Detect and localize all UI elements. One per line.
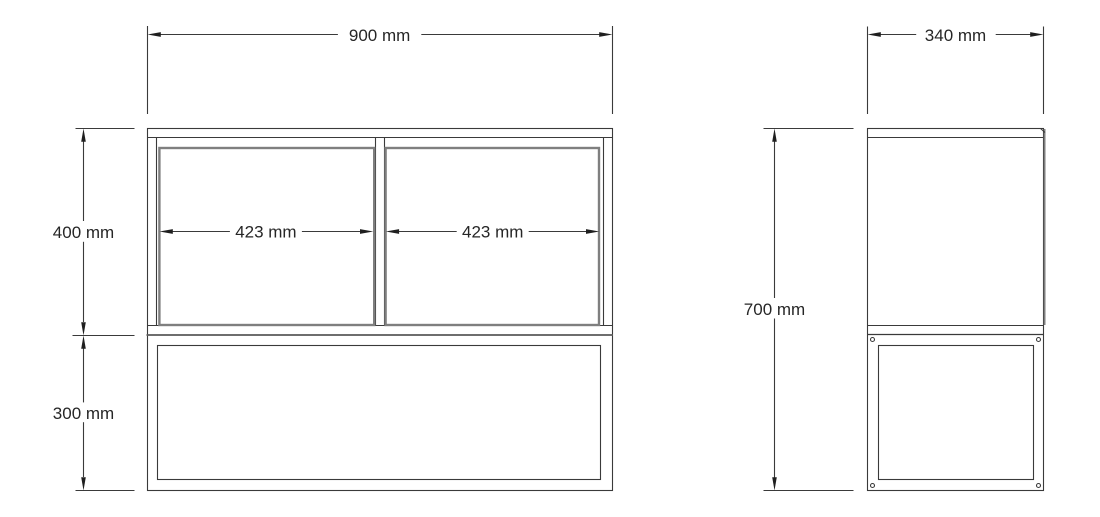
svg-text:423 mm: 423 mm bbox=[462, 223, 523, 242]
svg-text:700 mm: 700 mm bbox=[744, 300, 805, 319]
svg-text:400 mm: 400 mm bbox=[53, 223, 114, 242]
svg-text:340 mm: 340 mm bbox=[925, 26, 986, 45]
svg-text:900 mm: 900 mm bbox=[349, 26, 410, 45]
svg-text:300 mm: 300 mm bbox=[53, 404, 114, 423]
svg-text:423 mm: 423 mm bbox=[235, 223, 296, 242]
